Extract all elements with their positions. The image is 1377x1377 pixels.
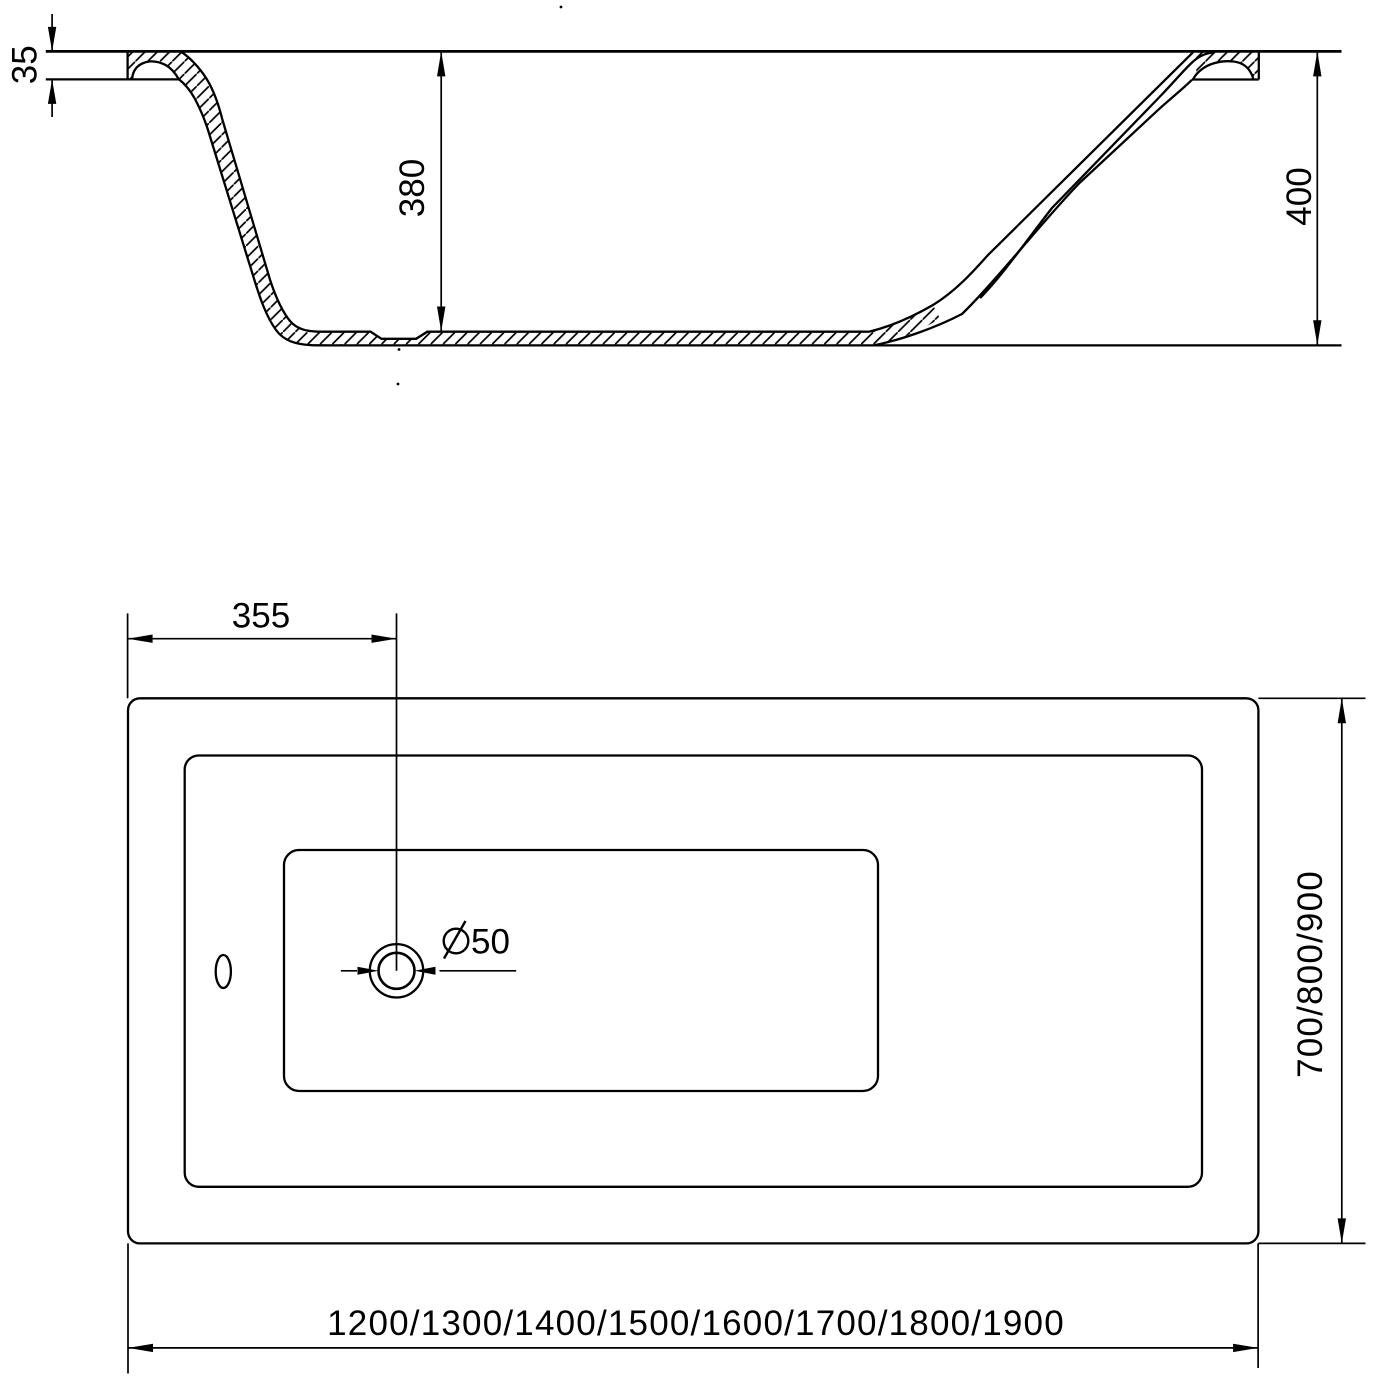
- svg-text:50: 50: [471, 923, 510, 962]
- svg-text:355: 355: [232, 597, 290, 636]
- svg-text:380: 380: [393, 159, 432, 217]
- svg-text:700/800/900: 700/800/900: [1291, 870, 1330, 1078]
- svg-text:1200/1300/1400/1500/1600/1700/: 1200/1300/1400/1500/1600/1700/1800/1900: [327, 1304, 1065, 1343]
- svg-text:400: 400: [1280, 167, 1319, 225]
- svg-text:35: 35: [6, 45, 45, 84]
